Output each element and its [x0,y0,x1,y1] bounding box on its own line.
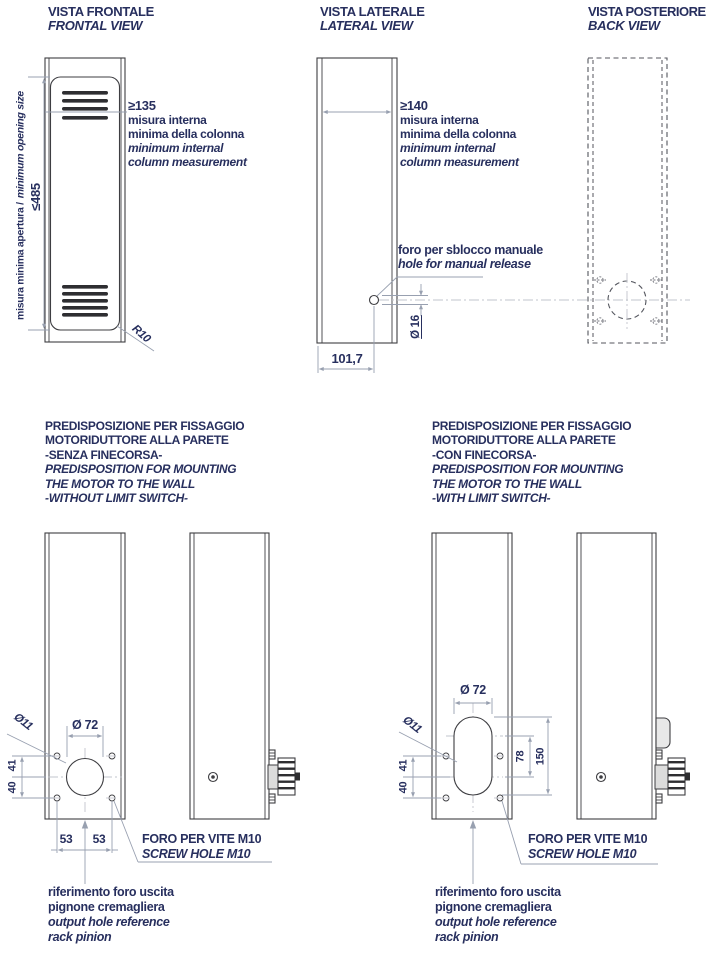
lateral-column-drawing [317,58,690,373]
mount-left-pinion-note-line: rack pinion [48,931,111,944]
mount-right-dim-41: 41 [398,756,411,776]
mount-left-big-dia: Ø 72 [64,719,106,732]
lateral-view-title: VISTA LATERALE [320,5,425,19]
pinion-assembly [268,750,300,803]
mount-right-title-line: MOTORIDUTTORE ALLA PARETE [432,434,616,447]
pinion-gear-right [668,758,685,795]
mount-right-title-line: PREDISPOSIZIONE PER FISSAGGIO [432,420,631,433]
frontal-internal-note-line: minima della colonna [128,128,244,141]
mount-left-title-line: MOTORIDUTTORE ALLA PARETE [45,434,229,447]
pinion-assembly-right [655,750,690,803]
mount-left-dim-40: 40 [7,778,20,798]
mount-right-pinion-note-line: output hole reference [435,916,557,929]
lateral-view-subtitle: LATERAL VIEW [320,19,413,33]
mount-right-pinion-note-line: pignone cremagliera [435,901,552,914]
mount-left-screw-note-en: SCREW HOLE M10 [142,848,250,861]
lateral-internal-note-line: misura interna [400,114,479,127]
mount-left-pinion-note-line: pignone cremagliera [48,901,165,914]
mount-right-pinion-note-line: riferimento foro uscita [435,886,561,899]
back-view-title: VISTA POSTERIORE [588,5,706,19]
technical-drawing-page: VISTA FRONTALE FRONTAL VIEW ≤485 misura … [0,0,720,960]
frontal-internal-dim: ≥135 [128,99,156,113]
mount-left-pinion-note-line: riferimento foro uscita [48,886,174,899]
back-screw-symbols [594,277,662,324]
mount-right-screw-note-it: FORO PER VITE M10 [528,833,647,846]
pinion-reference-pointer-right [470,820,476,884]
frontal-internal-note-line: column measurement [128,156,247,169]
mount-right-dim-150: 150 [535,742,548,772]
frontal-view-subtitle: FRONTAL VIEW [48,19,142,33]
mount-right-big-dia: Ø 72 [452,684,494,697]
frontal-height-label: misura minima apertura /minimum opening … [15,78,28,334]
mount-right-dim-78: 78 [515,745,528,769]
release-hole-dia: Ø 16 [409,305,423,349]
limit-switch-housing [656,718,670,748]
mount-right-screw-note-en: SCREW HOLE M10 [528,848,636,861]
mount-left-pinion-note-line: output hole reference [48,916,170,929]
back-view-subtitle: BACK VIEW [588,19,660,33]
mount-left-side-drawing [190,533,300,819]
pinion-gear [278,758,295,795]
pinion-output-slot [454,717,492,795]
frontal-height-dim: ≤485 [28,174,44,220]
lateral-internal-note-line: column measurement [400,156,519,169]
lateral-internal-dim: ≥140 [400,99,428,113]
pinion-output-hole [67,759,104,796]
frontal-internal-note-line: minimum internal [128,142,223,155]
mount-right-title-line: PREDISPOSITION FOR MOUNTING [432,463,623,476]
mount-right-title-line: -WITH LIMIT SWITCH- [432,492,550,505]
mount-left-dim-53-right: 53 [89,833,109,846]
pinion-reference-pointer [82,820,88,884]
release-note-it: foro per sblocco manuale [398,244,543,257]
mount-left-dim-41: 41 [7,756,20,776]
mount-left-title-line: THE MOTOR TO THE WALL [45,478,195,491]
mount-left-title-line: PREDISPOSIZIONE PER FISSAGGIO [45,420,244,433]
manual-release-hole [370,296,379,305]
mount-left-dim-53-left: 53 [56,833,76,846]
lateral-internal-note-line: minimum internal [400,142,495,155]
mount-right-side-drawing [577,533,690,819]
mount-right-title-line: -CON FINECORSA- [432,449,536,462]
lateral-internal-note-line: minima della colonna [400,128,516,141]
release-note-en: hole for manual release [398,258,531,271]
frontal-internal-note-line: misura interna [128,114,207,127]
mount-left-title-line: -WITHOUT LIMIT SWITCH- [45,492,188,505]
frontal-view-title: VISTA FRONTALE [48,5,154,19]
mount-right-pinion-note-line: rack pinion [435,931,498,944]
mount-right-dim-40: 40 [398,778,411,798]
mount-left-title-line: PREDISPOSITION FOR MOUNTING [45,463,236,476]
lateral-depth-dim: 101,7 [324,352,370,366]
mount-left-screw-note-it: FORO PER VITE M10 [142,833,261,846]
mount-right-title-line: THE MOTOR TO THE WALL [432,478,582,491]
mount-left-title-line: -SENZA FINECORSA- [45,449,162,462]
